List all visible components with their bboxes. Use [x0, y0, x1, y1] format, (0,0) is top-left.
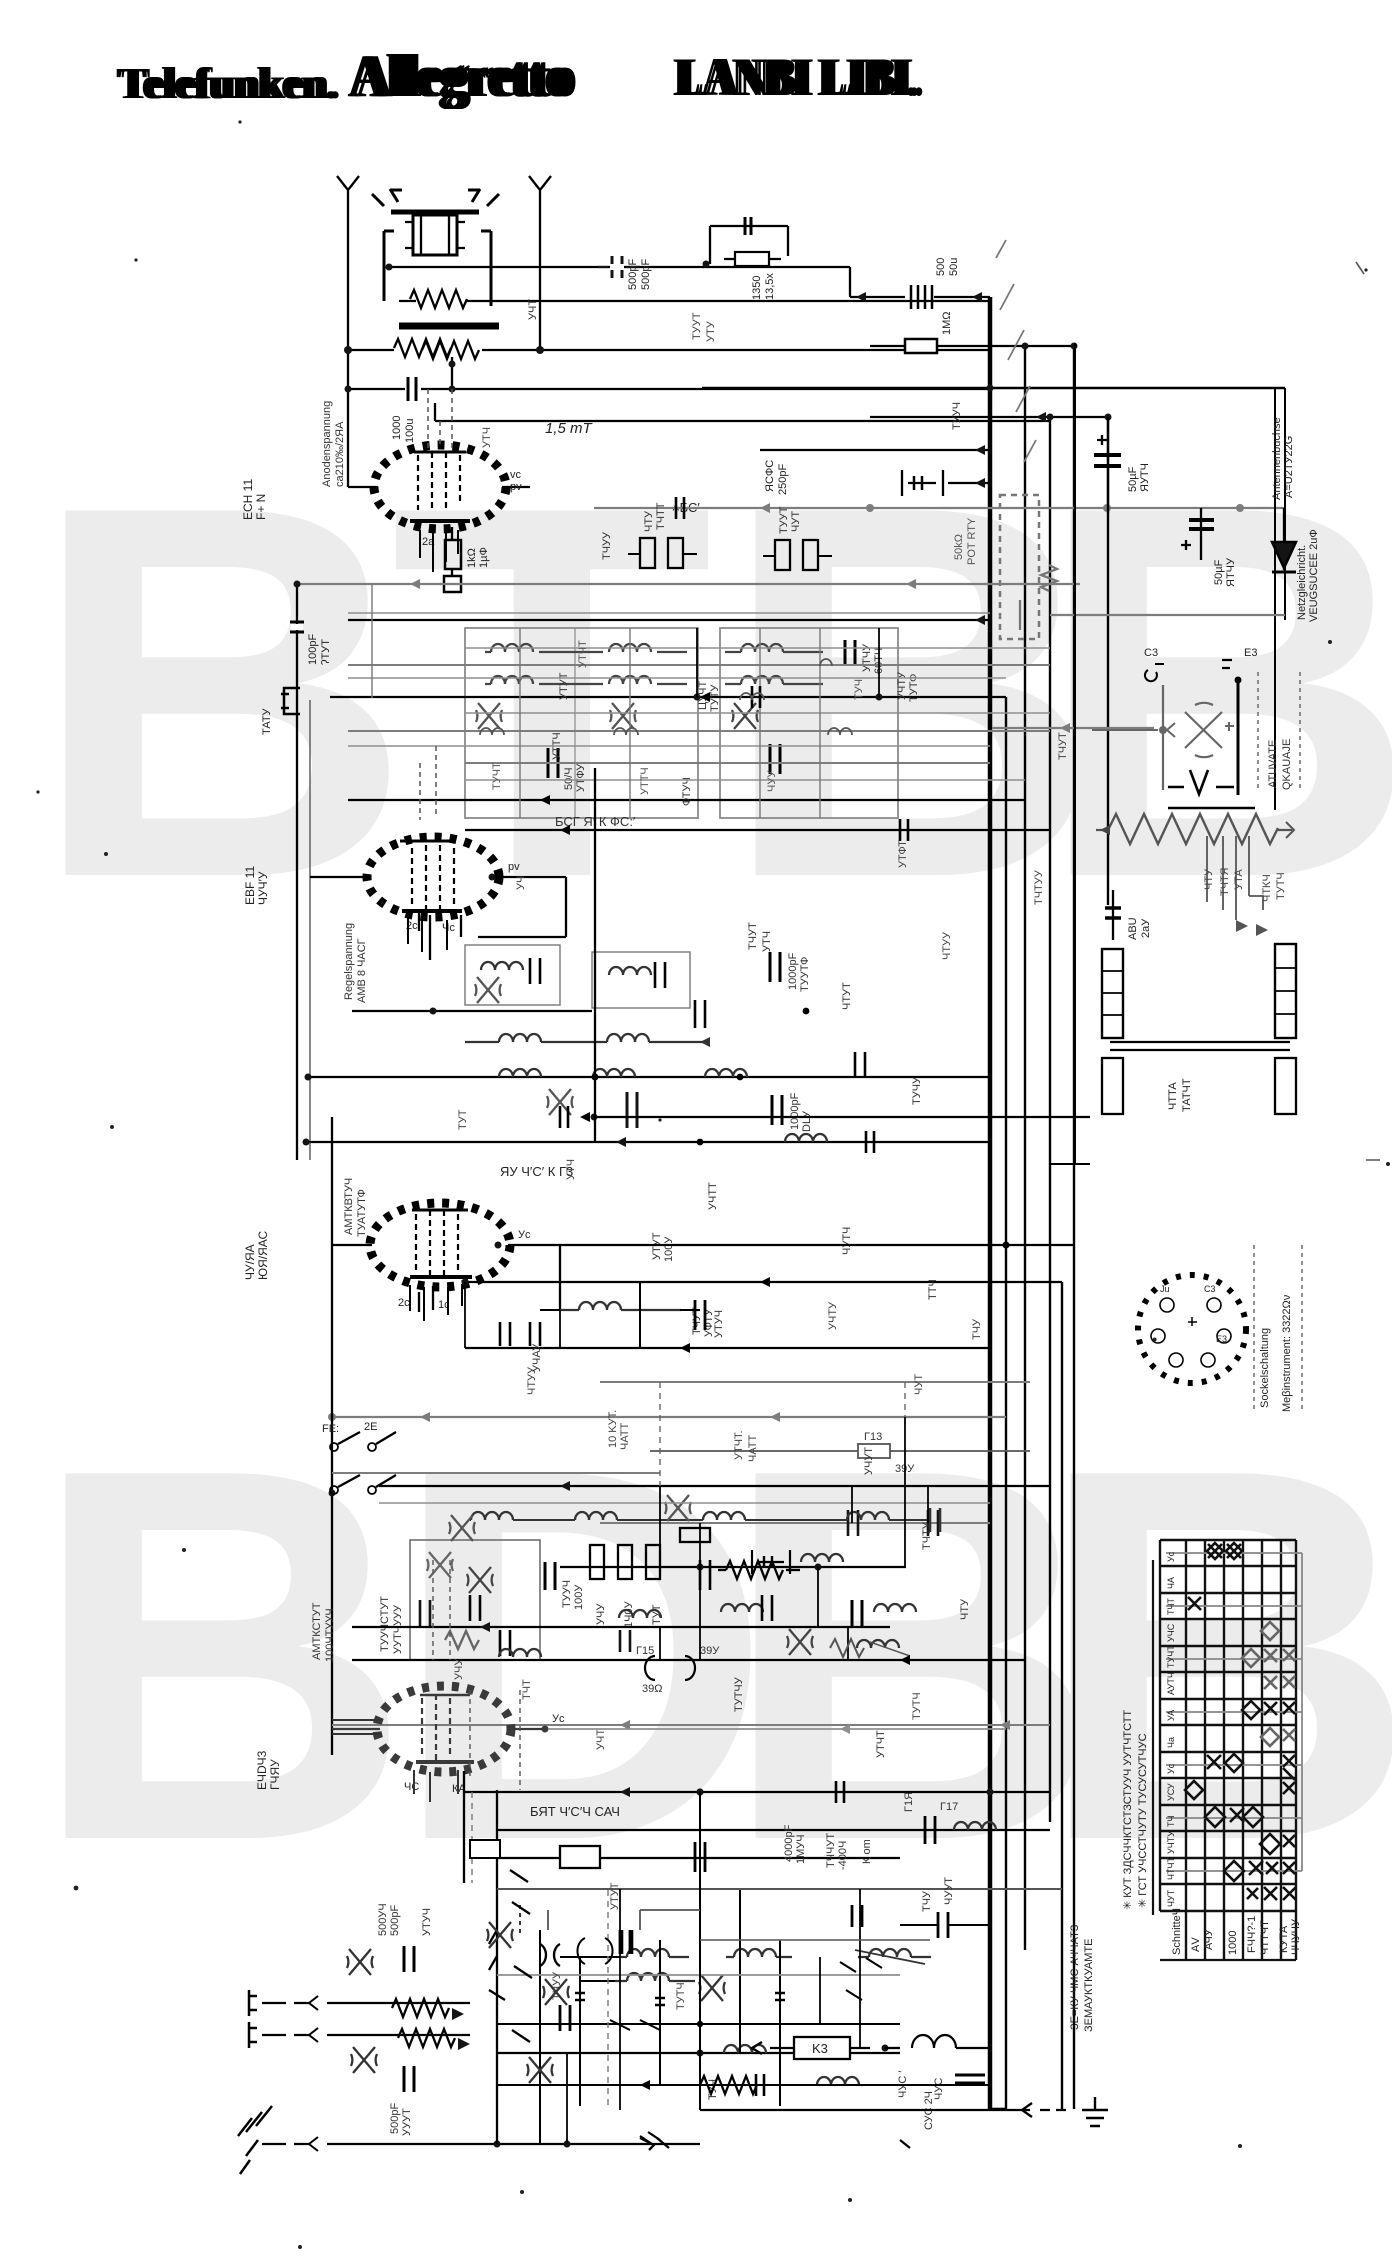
svg-text:ЗЕМАУКТКУАМТЕ: ЗЕМАУКТКУАМТЕ — [1083, 1939, 1095, 2032]
svg-text:АМВ 8 ЧАCГ: АМВ 8 ЧАCГ — [356, 938, 368, 1003]
svg-text:ТУТЧУ: ТУТЧУ — [733, 1676, 745, 1712]
svg-text:ТЧ: ТЧ — [1166, 1816, 1176, 1828]
svg-text:Ju: Ju — [1160, 1284, 1170, 1294]
svg-text:Уc: Уc — [1166, 1551, 1176, 1562]
svg-text:POT RTY: POT RTY — [966, 517, 978, 565]
svg-text:ТЧТ: ТЧТ — [1166, 1598, 1176, 1615]
svg-text:ЧА: ЧА — [1166, 1577, 1176, 1589]
svg-text:ТУАТУТФ: ТУАТУТФ — [356, 1189, 368, 1237]
svg-text:ca210‰/2ЯА: ca210‰/2ЯА — [334, 421, 346, 487]
svg-text:ТАТЧТ: ТАТЧТ — [1181, 1078, 1193, 1112]
svg-text:C3: C3 — [1204, 1284, 1216, 1294]
svg-text:13,5x: 13,5x — [764, 273, 776, 300]
svg-text:vc: vc — [510, 469, 522, 481]
svg-text:Ча: Ча — [1166, 1737, 1176, 1748]
svg-text:ЧТТЧТ: ЧТТЧТ — [1259, 1920, 1271, 1955]
svg-text:УТЧТ: УТЧТ — [875, 1730, 887, 1758]
svg-text:ЧТУУ: ЧТУУ — [941, 931, 953, 960]
svg-text:ТУТЧ: ТУТЧ — [675, 1982, 687, 2010]
svg-text:ЧУУ: ЧУУ — [766, 770, 778, 792]
svg-text:АЧУ: АЧУ — [1203, 1928, 1215, 1950]
svg-text:УТУЧ: УТУЧ — [421, 1908, 433, 1936]
svg-text:E3: E3 — [1244, 647, 1257, 659]
svg-text:2aУ: 2aУ — [1140, 918, 1152, 938]
svg-text:УЧУ: УЧУ — [595, 1603, 607, 1625]
svg-text:ЧУЧ′У: ЧУЧ′У — [256, 871, 270, 905]
svg-text:ТТЧ: ТТЧ — [927, 1279, 939, 1300]
svg-text:500pF: 500pF — [627, 259, 639, 290]
svg-text:ЧУТ: ЧУТ — [790, 511, 802, 532]
svg-text:ТУТЧ: ТУТЧ — [911, 1692, 923, 1720]
svg-text:39У: 39У — [700, 1645, 720, 1657]
svg-text:4000pF: 4000pF — [783, 1824, 795, 1862]
svg-text:Antennenbuchse: Antennenbuchse — [1271, 417, 1283, 500]
svg-text:-400Ч: -400Ч — [837, 1841, 849, 1870]
svg-text:50kΩ: 50kΩ — [953, 534, 965, 560]
svg-text:ТАТУ: ТАТУ — [261, 707, 273, 735]
svg-text:УЧ: УЧ — [515, 876, 527, 890]
svg-text:ТЧУТ: ТЧУТ — [1057, 732, 1069, 760]
svg-text:EЧDЧ3: EЧDЧ3 — [255, 1750, 269, 1790]
svg-text:ЧУУТ: ЧУУТ — [943, 1877, 955, 1905]
svg-text:УТФУ: УТФУ — [575, 763, 587, 792]
svg-text:ATUVATE: ATUVATE — [1267, 740, 1279, 788]
svg-text:УТУЧ: УТУЧ — [713, 1310, 725, 1338]
svg-text:УЧТУ: УЧТУ — [1166, 1831, 1176, 1854]
svg-text:УЧУТ: УЧУТ — [863, 1447, 875, 1475]
svg-text:DLУ: DLУ — [801, 1110, 813, 1132]
svg-text:Г15: Г15 — [636, 1645, 654, 1657]
svg-text:УУУТ: УУУТ — [401, 2108, 413, 2136]
svg-text:ТУТУ: ТУТУ — [709, 684, 721, 712]
svg-text:ЧУ/ЯА: ЧУ/ЯА — [243, 1244, 257, 1280]
svg-text:1000pF: 1000pF — [787, 952, 799, 990]
svg-text:1000: 1000 — [1227, 1931, 1239, 1955]
svg-text:ЧТУТ: ЧТУТ — [841, 982, 853, 1010]
svg-text:УЧС: УЧС — [1166, 1623, 1176, 1642]
svg-text:ЮЯ/ЯАС: ЮЯ/ЯАС — [256, 1230, 270, 1280]
svg-text:Г13: Г13 — [864, 1431, 882, 1443]
svg-text:39Ω: 39Ω — [642, 1683, 662, 1695]
svg-text:УТФТ: УТФТ — [897, 840, 909, 868]
svg-text:2E: 2E — [364, 1421, 377, 1433]
svg-text:ТУЧТ: ТУЧТ — [1166, 1645, 1176, 1668]
svg-text:Anodenspannung: Anodenspannung — [321, 401, 333, 487]
svg-text:УТЧ: УТЧ — [481, 427, 493, 448]
svg-text:ГЧЯУ: ГЧЯУ — [268, 1759, 282, 1790]
svg-text:500УЧ: 500УЧ — [377, 1903, 389, 1936]
svg-text:АМТКСТУТ: АМТКСТУТ — [311, 1602, 323, 1660]
svg-text:ABU: ABU — [1127, 917, 1139, 940]
svg-text:УТЧ: УТЧ — [761, 931, 773, 952]
svg-text:УЧТУ: УЧТУ — [896, 671, 908, 700]
svg-text:ТУУТ: ТУУТ — [691, 312, 703, 340]
svg-text:УЧТ: УЧТ — [595, 1729, 607, 1750]
svg-text:pv: pv — [510, 481, 522, 493]
svg-text:ТУЧУ: ТУЧУ — [911, 1076, 923, 1105]
svg-text:250pF: 250pF — [777, 464, 789, 495]
svg-text:ЧУТ: ЧУТ — [913, 1374, 925, 1395]
svg-text:500pF: 500pF — [389, 1905, 401, 1936]
svg-text:УТУТ: УТУТ — [651, 1232, 663, 1260]
svg-text:10 KУT.: 10 KУT. — [607, 1410, 619, 1448]
svg-text:УТЧТ: УТЧТ — [577, 640, 589, 668]
svg-text:50u: 50u — [948, 258, 960, 276]
svg-text:УСУ: УСУ — [1166, 1783, 1176, 1801]
svg-text:ТУУТ: ТУУТ — [778, 506, 790, 534]
svg-text:100u: 100u — [404, 419, 416, 443]
svg-text:ТЧЧУТ: ТЧЧУТ — [825, 1833, 837, 1868]
svg-text:УЧТУ: УЧТУ — [827, 1301, 839, 1330]
svg-text:50µF: 50µF — [1127, 466, 1139, 492]
svg-text:1kΩ: 1kΩ — [466, 548, 478, 568]
svg-text:1MΩ: 1MΩ — [941, 311, 953, 335]
svg-text:АV: АV — [1190, 1937, 1202, 1952]
svg-text:АМТКВТУЧ: АМТКВТУЧ — [343, 1178, 355, 1235]
svg-text:ECH 11: ECH 11 — [241, 479, 255, 520]
svg-text:VEUGSUCEE 2uФ: VEUGSUCEE 2uФ — [1308, 529, 1320, 622]
svg-text:ТУУТФ: ТУУТФ — [799, 957, 811, 992]
svg-text:ТЧТТ: ТЧТТ — [655, 502, 667, 530]
svg-text:ЧТТА: ЧТТА — [1167, 1082, 1179, 1110]
svg-text:Г1Я: Г1Я — [903, 1792, 915, 1812]
svg-text:ТУЧТ: ТУЧТ — [491, 762, 503, 790]
svg-text:ЯТЧУ: ЯТЧУ — [1225, 557, 1237, 587]
svg-text:Meβinstrument: 3322Ων: Meβinstrument: 3322Ων — [1281, 1294, 1293, 1412]
svg-text:ТУТ: ТУТ — [457, 1109, 469, 1130]
svg-text:C3: C3 — [1144, 647, 1158, 659]
svg-text:100У: 100У — [573, 1584, 585, 1610]
svg-text:1MУЧ: 1MУЧ — [795, 1834, 807, 1864]
svg-text:Netzgleichricht.: Netzgleichricht. — [1296, 545, 1308, 620]
svg-text:УУТЧУУУ: УУТЧУУУ — [392, 1604, 404, 1654]
svg-text:УТЧТ.: УТЧТ. — [733, 1430, 745, 1460]
svg-text:F+ N: F+ N — [254, 494, 268, 520]
svg-text:FЧЧ?-1: FЧЧ?-1 — [1246, 1916, 1258, 1953]
svg-text:КУТА: КУТА — [1278, 1925, 1290, 1953]
svg-text:УТУТ: УТУТ — [558, 672, 570, 700]
svg-text:1000: 1000 — [391, 416, 403, 440]
svg-text:ТУЧ: ТУЧ — [853, 679, 865, 700]
svg-text:A=U2ТУ22G: A=U2ТУ22G — [1283, 436, 1295, 498]
svg-text:ЧТЧТ: ЧТЧТ — [1166, 1857, 1176, 1880]
svg-text:ТУУЧ: ТУУЧ — [951, 402, 963, 430]
svg-text:2c: 2c — [398, 1297, 410, 1309]
svg-text:УТТЧ: УТТЧ — [639, 767, 651, 795]
svg-text:EBF 11: EBF 11 — [243, 866, 257, 905]
svg-text:500: 500 — [935, 258, 947, 276]
svg-text:ЧАТТ: ЧАТТ — [619, 1422, 631, 1450]
svg-text:ТЧУ: ТЧУ — [921, 1890, 933, 1912]
svg-text:ЧТУ: ЧТУ — [643, 510, 655, 532]
svg-text:ТЧТ: ТЧТ — [521, 1679, 533, 1700]
svg-text:ТЧТУУ: ТЧТУУ — [1033, 869, 1045, 905]
svg-text:ЧТКЧ: ЧТКЧ — [1261, 874, 1273, 902]
svg-text:ЧЧУЧУ: ЧЧУЧУ — [1290, 1918, 1302, 1955]
svg-text:ФТУЧ: ФТУЧ — [681, 777, 693, 806]
svg-text:100pF: 100pF — [307, 634, 319, 665]
svg-text:QKAUAJE: QKAUAJE — [1281, 739, 1293, 790]
svg-text:ЧТУ: ЧТУ — [959, 1598, 971, 1620]
svg-text:50/Ч: 50/Ч — [563, 767, 575, 790]
svg-text:Regelspannung: Regelspannung — [343, 923, 355, 1000]
svg-text:УЧАУ: УЧАУ — [531, 1343, 543, 1372]
svg-text:ТЧУТ: ТЧУТ — [747, 922, 759, 950]
svg-text:K3: K3 — [812, 2041, 828, 2056]
svg-text:ʔТУТ: ʔТУТ — [320, 639, 332, 665]
svg-text:✳ КУТ ЗДСЧЧКТСТЗСТУУЧ УУТЧТСТТ: ✳ КУТ ЗДСЧЧКТСТЗСТУУЧ УУТЧТСТТ — [1122, 1710, 1134, 1910]
svg-text:УА: УА — [1166, 1710, 1176, 1721]
svg-text:1µФ: 1µФ — [478, 547, 490, 568]
svg-text:Sockelschaltung: Sockelschaltung — [1259, 1328, 1271, 1408]
svg-text:50µF: 50µF — [1213, 559, 1225, 585]
svg-text:УЧТТ: УЧТТ — [707, 1182, 719, 1210]
svg-text:ТЧУТ: ТЧУТ — [691, 1307, 703, 1335]
svg-text:1350: 1350 — [751, 276, 763, 300]
svg-text:ТУУЧСТУТ: ТУУЧСТУТ — [379, 1596, 391, 1652]
svg-text:pv: pv — [508, 861, 520, 873]
svg-text:ТУУЧ: ТУУЧ — [561, 1580, 573, 1608]
svg-text:БЯТ Ч′С′Ч САЧ: БЯТ Ч′С′Ч САЧ — [530, 1804, 620, 1819]
svg-text:ЧУТЧ: ЧУТЧ — [841, 1227, 853, 1255]
svg-text:ЧС: ЧС — [404, 1781, 419, 1793]
svg-text:E3: E3 — [1216, 1334, 1227, 1344]
svg-text:ЯУТЧ: ЯУТЧ — [1139, 463, 1151, 492]
svg-text:1000pF: 1000pF — [789, 1092, 801, 1130]
svg-text:●: ● — [1152, 1334, 1157, 1344]
svg-text:1,5 mT: 1,5 mT — [545, 420, 594, 437]
svg-text:FE:: FE: — [322, 1423, 339, 1435]
svg-text:АУТЧ: АУТЧ — [1166, 1672, 1176, 1695]
svg-text:К om: К om — [861, 1839, 873, 1864]
svg-text:ЯУ Ч′С′ К Г3: ЯУ Ч′С′ К Г3 — [500, 1164, 573, 1179]
svg-text:ТЧУУ: ТЧУУ — [601, 531, 613, 560]
svg-text:500pF: 500pF — [640, 259, 652, 290]
svg-text:УЧУ: УЧУ — [453, 1658, 465, 1680]
svg-text:Г17: Г17 — [940, 1801, 958, 1813]
svg-text:ТЧУ: ТЧУ — [971, 1318, 983, 1340]
svg-text:УТЧ: УТЧ — [565, 1159, 577, 1180]
svg-text:Чc: Чc — [442, 922, 455, 934]
svg-text:✳ ГСТ УЧССТЧУТУ ТУСУСУТЧУС: ✳ ГСТ УЧССТЧУТУ ТУСУСУТЧУС — [1137, 1733, 1149, 1908]
svg-text:Уc: Уc — [518, 1229, 531, 1241]
svg-text:500pF: 500pF — [389, 2103, 401, 2134]
svg-text:ЧАТТ: ЧАТТ — [747, 1434, 759, 1462]
svg-text:УЧТ: УЧТ — [527, 299, 539, 320]
svg-text:УТУ: УТУ — [705, 320, 717, 342]
svg-text:ЧУТ: ЧУТ — [1166, 1889, 1176, 1907]
svg-text:Уc: Уc — [1166, 1763, 1176, 1774]
svg-text:ТЧТЯ: ТЧТЯ — [1219, 867, 1231, 896]
svg-text:ТУТЧ: ТУТЧ — [1275, 872, 1287, 900]
svg-text:ЧТУ: ЧТУ — [1203, 868, 1215, 890]
svg-text:100ЧТУУЧ: 100ЧТУУЧ — [324, 1608, 336, 1662]
svg-text:ЗE=КУ ЧМС АЧЧАТЗ: ЗE=КУ ЧМС АЧЧАТЗ — [1069, 1924, 1081, 2030]
svg-text:SchnitteЧ: SchnitteЧ — [1171, 1908, 1183, 1955]
svg-text:Уc: Уc — [552, 1713, 565, 1725]
svg-text:ЯСФС: ЯСФС — [764, 460, 776, 492]
svg-text:100У: 100У — [663, 1236, 675, 1262]
svg-text:УТА: УТА — [1233, 869, 1245, 890]
